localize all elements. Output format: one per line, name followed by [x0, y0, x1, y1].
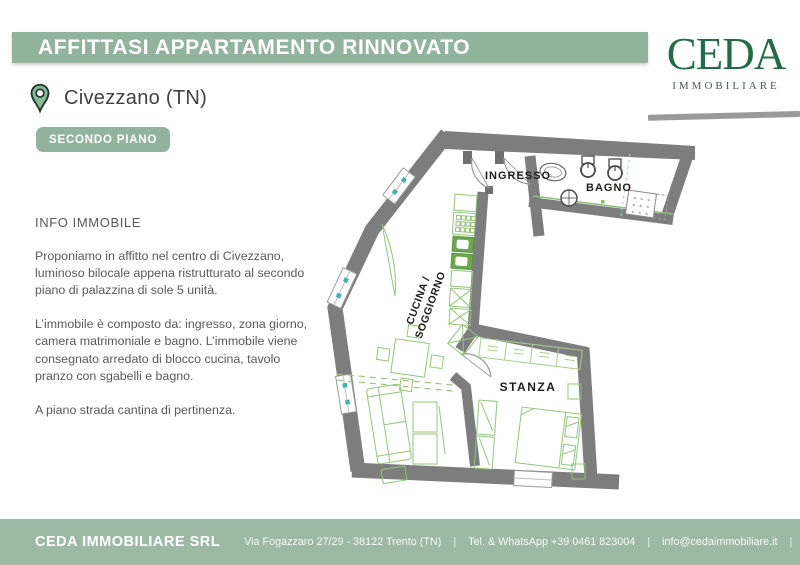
footer-address: Via Fogazzaro 27/29 - 38122 Trento (TN): [244, 536, 441, 548]
page-title: AFFITTASI APPARTAMENTO RINNOVATO: [38, 36, 470, 60]
wall-top: [445, 131, 695, 160]
footer-email: info@cedaimmobiliare.it: [662, 536, 777, 548]
drawer-grid-icon: [455, 215, 475, 232]
corner-cabinet: [382, 224, 395, 296]
room-label-ingresso: INGRESSO: [485, 170, 551, 182]
bed: [515, 384, 585, 479]
agency-logo: CEDA IMMOBILIARE: [664, 30, 788, 92]
footer-separator: |: [453, 536, 456, 548]
logo-subtitle: IMMOBILIARE: [664, 80, 788, 92]
footer-bar: CEDA IMMOBILIARE SRL Via Fogazzaro 27/29…: [0, 519, 800, 565]
dashed-divider: [337, 374, 453, 391]
location-label: Civezzano (TN): [64, 87, 207, 110]
wall-bagno-right: [666, 151, 689, 219]
window: [514, 471, 553, 488]
footer-contacts: Via Fogazzaro 27/29 - 38122 Trento (TN) …: [244, 536, 800, 548]
info-paragraph: A piano strada cantina di pertinenza.: [35, 402, 317, 419]
room-label-bagno: BAGNO: [586, 182, 632, 194]
wall-stub: [495, 151, 504, 164]
footer-separator: |: [647, 536, 650, 548]
wall-kitchen-inner: [473, 192, 483, 330]
info-paragraph: Proponiamo in affitto nel centro di Cive…: [35, 248, 317, 299]
sink-icon: [451, 236, 474, 269]
header-banner: AFFITTASI APPARTAMENTO RINNOVATO: [12, 32, 648, 63]
toilet-icon: [581, 156, 595, 177]
footer-phone: Tel. & WhatsApp +39 0461 823004: [468, 536, 635, 548]
floor-badge-label: SECONDO PIANO: [49, 134, 157, 146]
footer-separator: |: [790, 536, 793, 548]
wall-closet: [453, 376, 475, 466]
floor-plan: INGRESSO BAGNO CUCINA / SOGGIORNO STANZA: [325, 118, 705, 518]
logo-wordmark: CEDA: [664, 30, 788, 78]
wall-stanza-right: [583, 348, 591, 479]
closet-soggiorno: [413, 402, 445, 464]
sink-round-icon: [561, 190, 577, 206]
info-heading: INFO IMMOBILE: [35, 215, 317, 230]
map-pin-icon: [30, 83, 50, 114]
room-label-stanza: STANZA: [500, 380, 557, 394]
flyer-page: AFFITTASI APPARTAMENTO RINNOVATO CEDA IM…: [0, 0, 800, 565]
wall-bottom: [352, 470, 619, 482]
bidet-icon: [608, 159, 622, 180]
walls: [335, 131, 695, 482]
location-row: Civezzano (TN): [30, 83, 207, 114]
info-paragraph: L’immobile è composto da: ingresso, zona…: [35, 316, 317, 384]
floor-badge: SECONDO PIANO: [36, 127, 170, 152]
info-section: INFO IMMOBILE Proponiamo in affitto nel …: [35, 215, 317, 436]
wall-stub: [463, 151, 472, 164]
wall-stanza-top: [471, 329, 587, 353]
footer-company: CEDA IMMOBILIARE SRL: [35, 534, 220, 550]
kitchen-units: [382, 194, 479, 355]
